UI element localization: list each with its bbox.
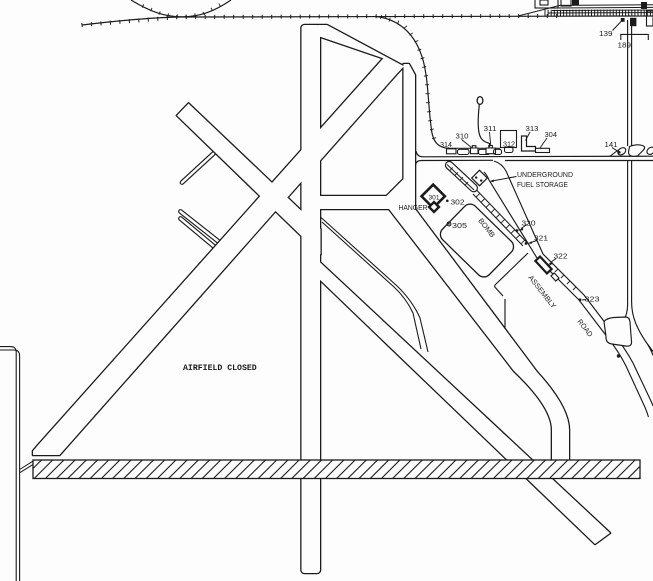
svg-text:139: 139 (599, 29, 613, 38)
svg-text:302: 302 (451, 198, 465, 207)
svg-text:311: 311 (484, 124, 497, 133)
svg-text:322: 322 (554, 252, 568, 261)
svg-text:UNDERGROUND: UNDERGROUND (517, 170, 574, 179)
svg-text:141: 141 (605, 140, 618, 149)
svg-text:310: 310 (456, 132, 469, 141)
svg-text:FUEL STORAGE: FUEL STORAGE (517, 180, 568, 189)
svg-text:314: 314 (440, 140, 452, 149)
svg-text:321: 321 (534, 234, 548, 243)
svg-text:301: 301 (429, 195, 441, 202)
svg-text:AIRFIELD CLOSED: AIRFIELD CLOSED (183, 364, 257, 373)
svg-text:305: 305 (452, 221, 467, 230)
svg-text:312: 312 (503, 139, 515, 148)
svg-text:313: 313 (526, 124, 539, 133)
svg-text:189: 189 (618, 41, 632, 50)
svg-text:304: 304 (545, 130, 558, 139)
svg-text:HANGER: HANGER (399, 203, 428, 212)
svg-text:320: 320 (522, 219, 536, 228)
svg-text:323: 323 (585, 295, 600, 304)
